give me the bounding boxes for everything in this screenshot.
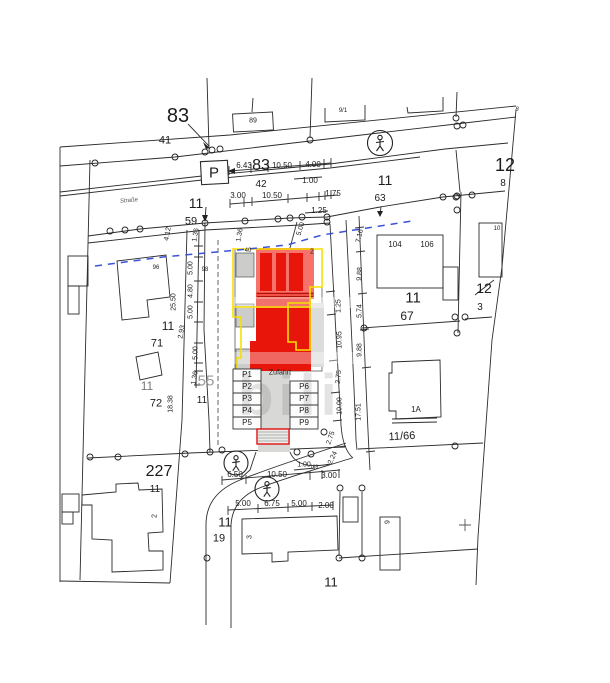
map-label: 2.24 <box>327 450 339 465</box>
map-label: 10.50 <box>262 192 282 200</box>
map-label: 106 <box>420 241 433 249</box>
map-label: 6.43 <box>236 162 252 170</box>
map-label: 5.00 <box>188 305 195 319</box>
map-label: 1.36 <box>235 228 244 243</box>
map-label: 6.75 <box>264 500 280 508</box>
map-label: 1A <box>411 406 421 414</box>
map-label: 6.50 <box>227 471 243 479</box>
map-label: Straße <box>120 197 138 205</box>
map-label: 5.74 <box>357 304 364 318</box>
map-label: 55 <box>198 374 215 389</box>
map-label: 4.00 <box>305 161 321 169</box>
map-label: 2.93 <box>177 325 186 340</box>
map-label: 5.00 <box>235 500 251 508</box>
map-label: 3 <box>477 303 483 313</box>
map-label: 1.25 <box>311 207 327 215</box>
map-label: 19 <box>213 534 225 545</box>
map-label: 3.00 <box>321 472 337 480</box>
map-label: P2 <box>242 383 252 391</box>
map-label: 42 <box>255 180 266 190</box>
map-label: P7 <box>299 395 309 403</box>
map-label: 2 <box>310 249 314 256</box>
map-label: 83 <box>252 158 270 174</box>
map-label: 25.50 <box>171 293 178 311</box>
map-label: 72 <box>150 399 162 410</box>
map-label: 11 <box>324 576 338 589</box>
map-label: 1.00 <box>302 177 318 185</box>
map-label: 10.00 <box>337 397 344 415</box>
map-label: 63 <box>374 194 385 204</box>
map-label: 169 <box>310 466 318 471</box>
map-label: P6 <box>299 383 309 391</box>
map-label: 5.00 <box>296 221 307 236</box>
map-label: 10.50 <box>272 162 292 170</box>
map-label: 2.75 <box>325 430 336 445</box>
map-label: P8 <box>299 407 309 415</box>
map-label: 1.75 <box>325 190 341 198</box>
map-label: 3.00 <box>230 192 246 200</box>
map-label: 5.00 <box>291 500 307 508</box>
map-label: 11 <box>197 396 207 406</box>
site-plan: bili 8341899/1P6.438310.504.001.00423.00… <box>0 0 610 683</box>
map-label: 11 <box>162 320 174 332</box>
map-labels-layer: 8341899/1P6.438310.504.001.00423.0010.50… <box>0 0 610 683</box>
map-label: 89 <box>249 118 257 125</box>
map-label: 11 <box>150 485 160 495</box>
map-label: P3 <box>242 395 252 403</box>
map-label: 10.50 <box>267 471 287 479</box>
map-label: 7.16 <box>355 229 365 244</box>
map-label: P9 <box>299 419 309 427</box>
map-label: P1 <box>242 371 252 379</box>
map-label: 9 <box>385 520 392 524</box>
map-label: 227 <box>146 464 173 480</box>
map-label: 96 <box>153 265 160 271</box>
map-label: 8 <box>515 107 518 113</box>
map-label: 104 <box>388 241 401 249</box>
map-label: 11 <box>189 196 204 210</box>
map-label: Zufahrt <box>269 370 291 377</box>
map-label: 11 <box>141 380 153 392</box>
map-label: 98 <box>202 267 209 273</box>
map-label: 2.75 <box>335 370 343 384</box>
map-label: 1.36 <box>191 228 200 243</box>
map-label: 71 <box>151 339 163 350</box>
map-label: 1.00 <box>297 462 311 469</box>
map-label: 11/66 <box>388 431 415 443</box>
map-label: P4 <box>242 407 252 415</box>
map-label: 10 <box>494 226 501 232</box>
map-label: 2.00 <box>318 502 334 510</box>
map-label: 4.12 <box>163 227 172 242</box>
map-label: 8 <box>500 179 506 189</box>
map-label: 17.51 <box>356 403 363 421</box>
map-label: 2 <box>152 514 159 518</box>
map-label: 12 <box>476 281 492 295</box>
map-label: 4.80 <box>188 284 195 298</box>
map-label: 9/1 <box>339 108 347 114</box>
map-label: 40 <box>245 248 252 254</box>
map-label: 9.88 <box>356 267 364 281</box>
map-label: 5.00 <box>193 346 200 360</box>
map-label: 5.00 <box>188 261 195 275</box>
map-label: 11 <box>218 516 232 529</box>
map-label: 11 <box>405 291 421 306</box>
map-label: 1.25 <box>336 299 343 313</box>
map-label: 41 <box>159 136 171 147</box>
map-label: P5 <box>242 419 252 427</box>
map-label: 3 <box>247 535 254 539</box>
map-label: 83 <box>167 106 189 126</box>
map-label: 11 <box>378 173 393 187</box>
map-label: 18.38 <box>168 395 175 413</box>
map-label: P <box>209 166 219 181</box>
map-label: 12 <box>495 156 515 174</box>
map-label: 67 <box>400 310 413 322</box>
map-label: 59 <box>185 217 197 228</box>
map-label: 9.88 <box>357 343 364 357</box>
map-label: 10.95 <box>337 331 344 349</box>
